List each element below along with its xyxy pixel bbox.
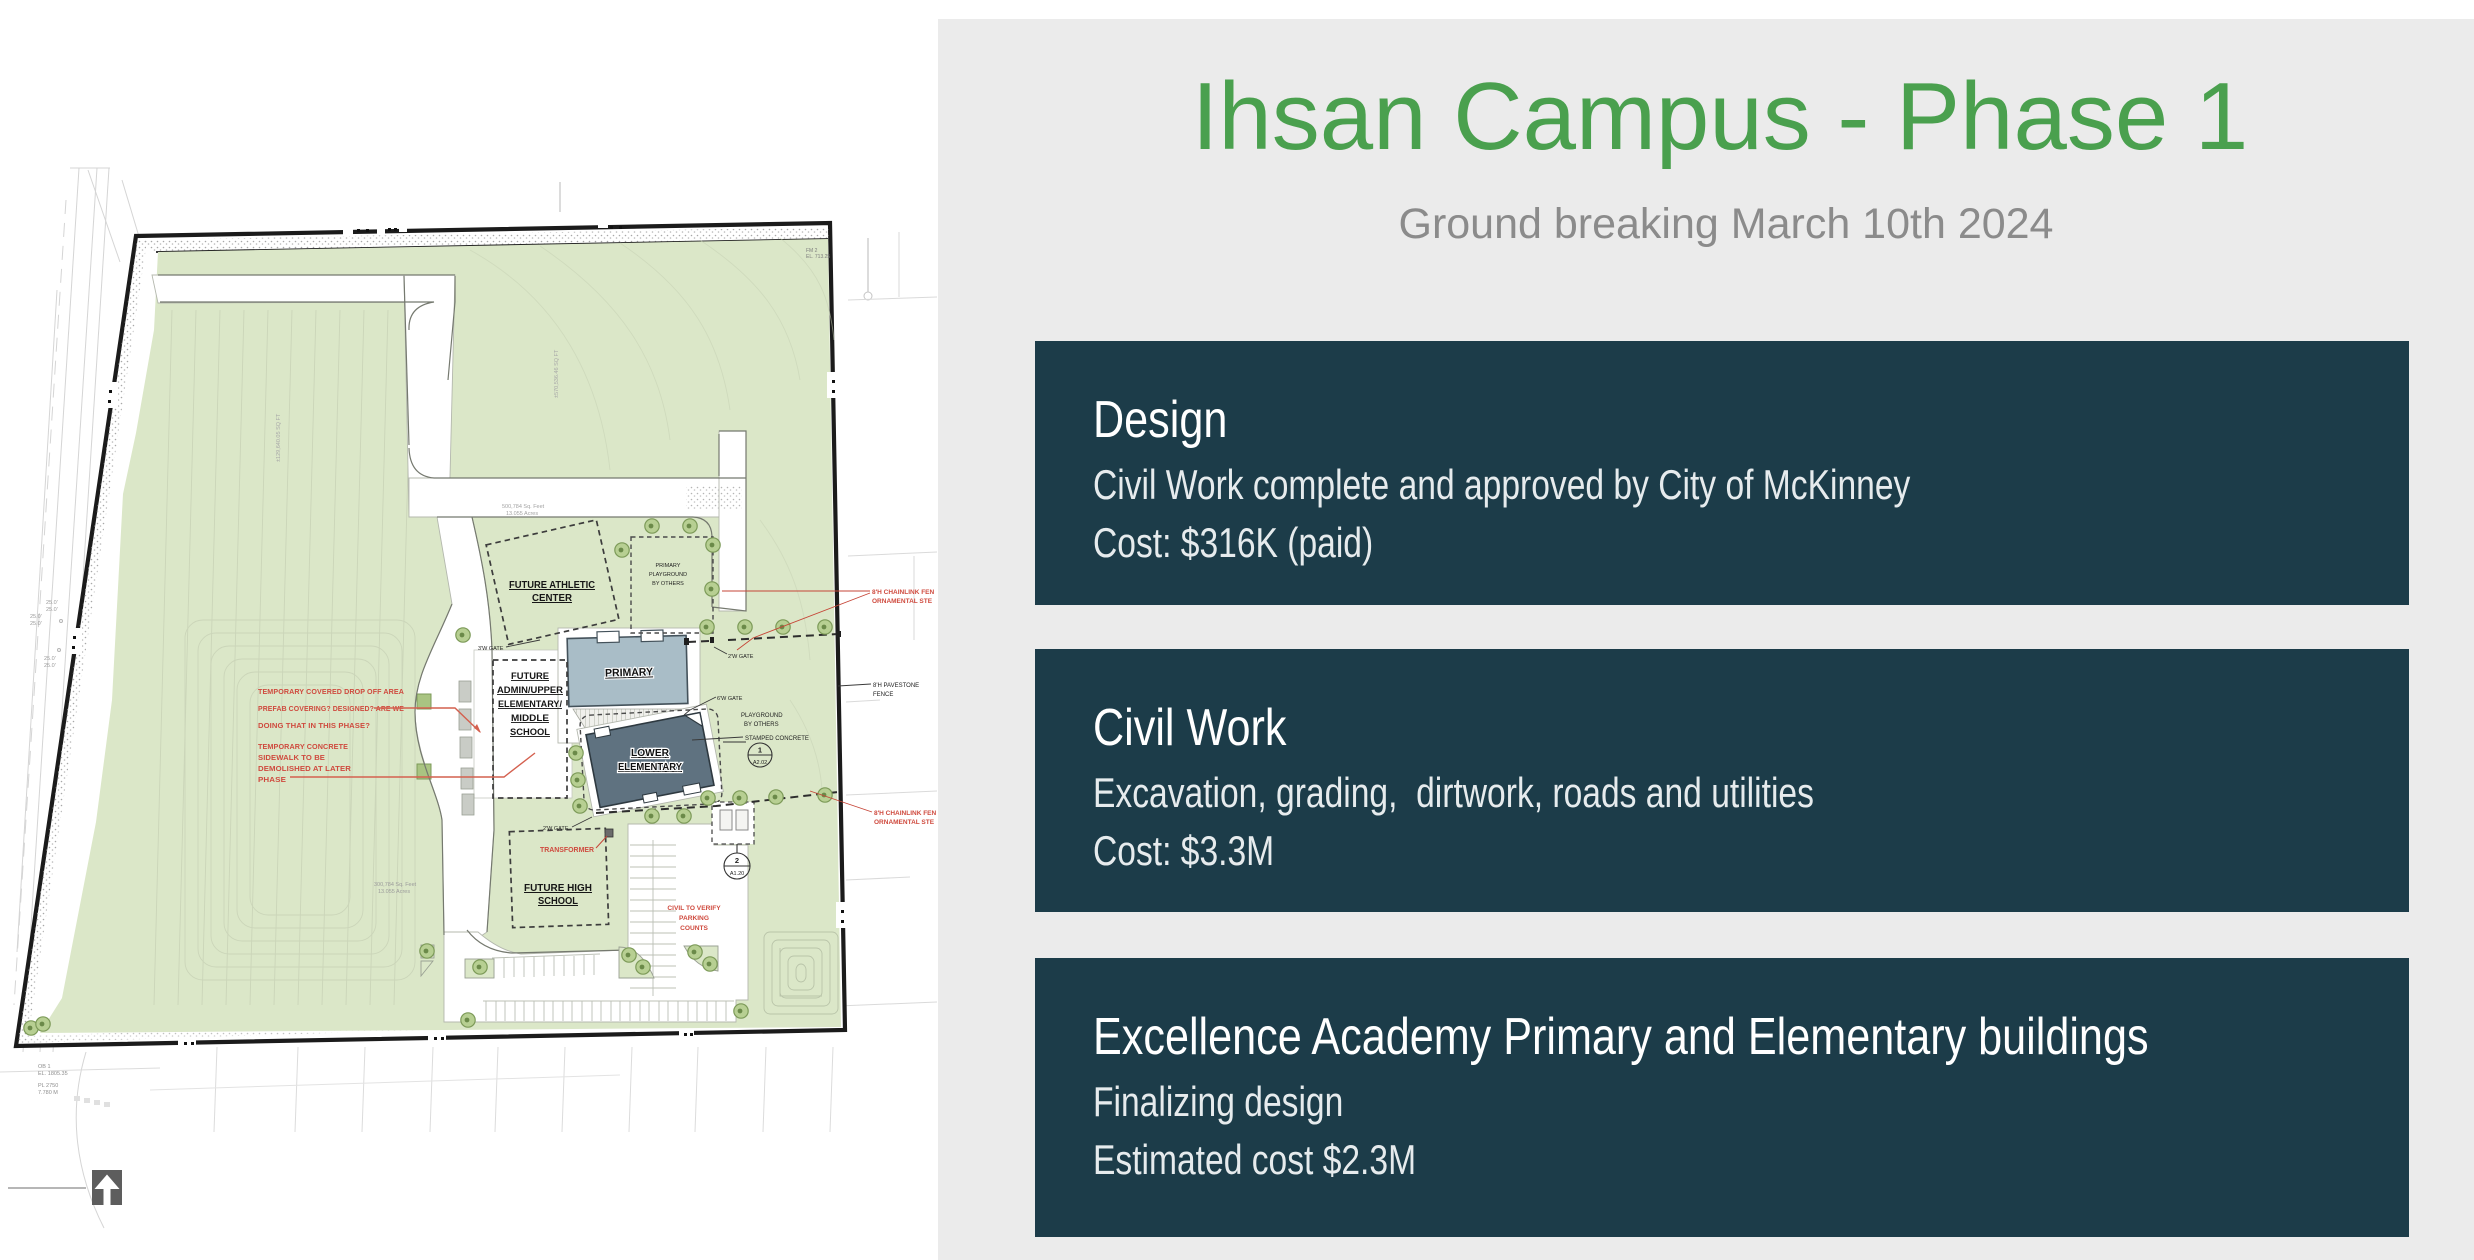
svg-text:ELEMENTARY/: ELEMENTARY/ [498, 699, 562, 709]
svg-text:PL 2750: PL 2750 [38, 1083, 58, 1089]
svg-text:PRIMARY: PRIMARY [605, 666, 654, 679]
svg-text:PARKING: PARKING [679, 915, 709, 922]
svg-text:±129,640.05 SQ FT: ±129,640.05 SQ FT [276, 413, 282, 462]
svg-text:SIDEWALK TO BE: SIDEWALK TO BE [258, 753, 325, 762]
svg-text:25.0': 25.0' [30, 614, 42, 620]
svg-text:PLAYGROUND: PLAYGROUND [649, 572, 687, 578]
svg-text:TRANSFORMER: TRANSFORMER [540, 847, 594, 854]
svg-text:25.0': 25.0' [44, 663, 56, 669]
svg-text:±570,536.46 SQ FT: ±570,536.46 SQ FT [554, 349, 560, 398]
svg-text:ORNAMENTAL STE: ORNAMENTAL STE [872, 598, 933, 605]
svg-text:FENCE: FENCE [873, 692, 893, 698]
svg-text:TEMPORARY COVERED DROP OFF ARE: TEMPORARY COVERED DROP OFF AREA [258, 687, 404, 696]
svg-text:EL. 1805.35: EL. 1805.35 [38, 1071, 68, 1077]
svg-text:TEMPORARY CONCRETE: TEMPORARY CONCRETE [258, 742, 348, 751]
svg-text:FUTURE: FUTURE [511, 671, 549, 681]
svg-text:SCHOOL: SCHOOL [510, 727, 551, 737]
svg-text:ORNAMENTAL STE: ORNAMENTAL STE [874, 819, 935, 826]
svg-text:8'H CHAINLINK FEN: 8'H CHAINLINK FEN [872, 589, 935, 596]
svg-text:3'W GATE: 3'W GATE [478, 646, 504, 652]
svg-text:2'W GATE: 2'W GATE [543, 826, 569, 832]
svg-text:FUTURE ATHLETIC: FUTURE ATHLETIC [509, 580, 595, 591]
svg-text:MIDDLE: MIDDLE [511, 713, 549, 723]
svg-text:500,784 Sq. Feet: 500,784 Sq. Feet [502, 504, 545, 510]
svg-text:COUNTS: COUNTS [680, 925, 708, 932]
svg-text:OB 1: OB 1 [38, 1064, 51, 1070]
svg-text:BY OTHERS: BY OTHERS [744, 722, 779, 728]
svg-text:A1.20: A1.20 [730, 871, 744, 877]
svg-text:300,784 Sq. Feet: 300,784 Sq. Feet [374, 882, 417, 888]
svg-text:25.0': 25.0' [46, 607, 58, 613]
svg-text:13.055 Acres: 13.055 Acres [378, 889, 410, 895]
svg-text:ELEMENTARY: ELEMENTARY [618, 762, 682, 773]
svg-text:LOWER: LOWER [631, 748, 670, 759]
svg-text:FUTURE HIGH: FUTURE HIGH [524, 883, 592, 894]
svg-text:13.055 Acres: 13.055 Acres [506, 511, 538, 517]
svg-text:2: 2 [735, 856, 739, 865]
svg-text:EL. 713.25: EL. 713.25 [806, 254, 830, 260]
svg-text:7.780 M: 7.780 M [38, 1090, 58, 1096]
svg-text:25.0': 25.0' [30, 621, 42, 627]
svg-text:6'W GATE: 6'W GATE [717, 696, 743, 702]
svg-text:BY OTHERS: BY OTHERS [652, 581, 684, 587]
svg-text:25.0': 25.0' [46, 600, 58, 606]
svg-text:DEMOLISHED AT LATER: DEMOLISHED AT LATER [258, 764, 351, 773]
svg-text:CIVIL TO VERIFY: CIVIL TO VERIFY [667, 905, 721, 912]
svg-text:ADMIN/UPPER: ADMIN/UPPER [497, 685, 564, 695]
svg-text:1: 1 [758, 746, 762, 755]
svg-text:25.0': 25.0' [44, 656, 56, 662]
svg-text:2'W GATE: 2'W GATE [728, 654, 754, 660]
svg-text:CENTER: CENTER [532, 593, 573, 604]
svg-text:8'H PAVESTONE: 8'H PAVESTONE [873, 683, 919, 689]
svg-text:PHASE: PHASE [258, 775, 286, 784]
svg-text:PLAYGROUND: PLAYGROUND [741, 713, 783, 719]
svg-text:SCHOOL: SCHOOL [538, 896, 578, 907]
svg-text:8'H CHAINLINK FEN: 8'H CHAINLINK FEN [874, 810, 937, 817]
svg-text:STAMPED CONCRETE: STAMPED CONCRETE [745, 736, 809, 742]
svg-text:PRIMARY: PRIMARY [656, 563, 681, 569]
svg-text:DOING THAT IN THIS PHASE?: DOING THAT IN THIS PHASE? [258, 721, 370, 730]
svg-text:A2.02: A2.02 [753, 760, 767, 766]
